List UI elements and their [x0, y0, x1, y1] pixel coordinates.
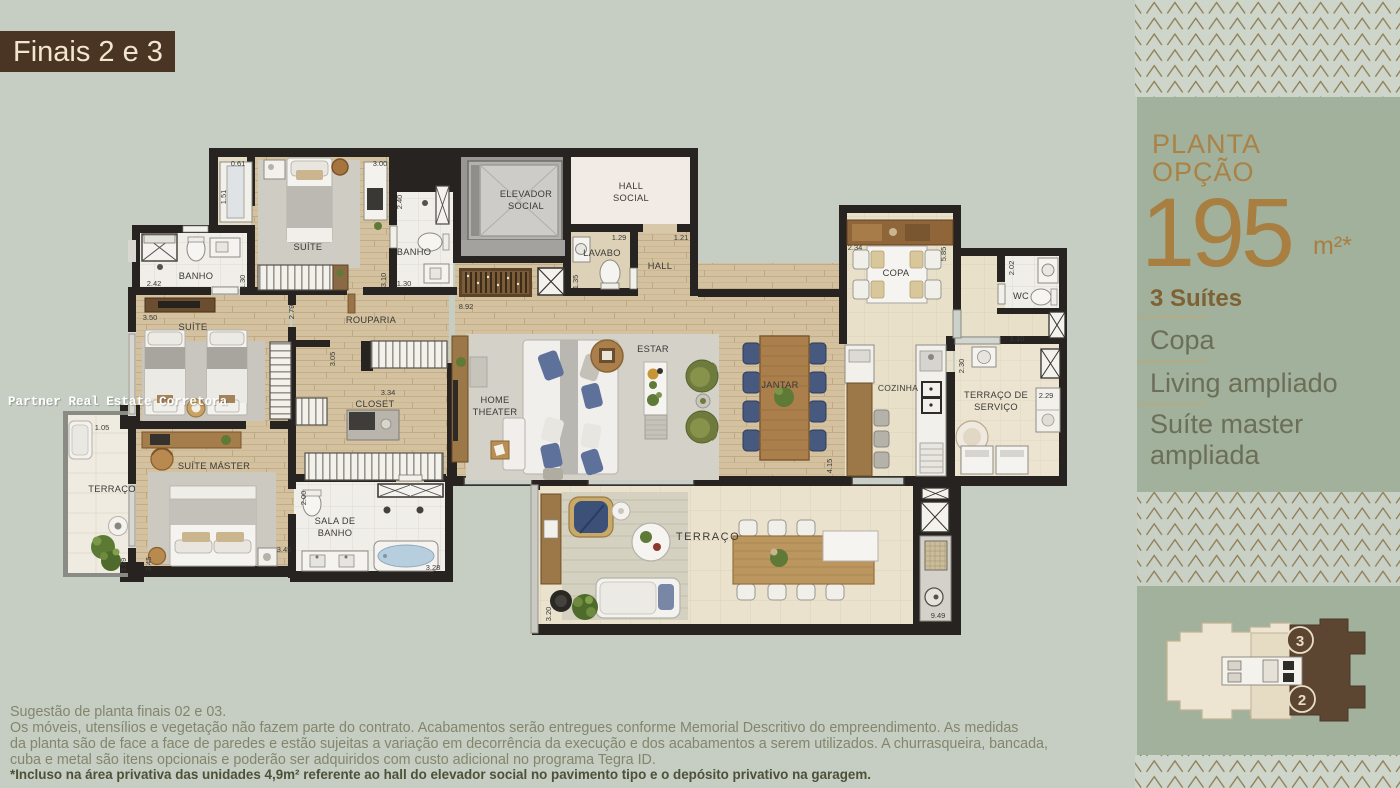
svg-text:TERRAÇO: TERRAÇO — [88, 484, 136, 494]
svg-text:SERVIÇO: SERVIÇO — [974, 402, 1018, 412]
svg-text:HOME: HOME — [480, 395, 509, 405]
svg-text:ELEVADOR: ELEVADOR — [500, 189, 552, 199]
svg-text:1.30: 1.30 — [238, 275, 247, 290]
svg-text:da planta são de face a face d: da planta são de face a face de paredes … — [10, 736, 1048, 752]
svg-text:BANHO: BANHO — [179, 271, 214, 281]
svg-text:Living ampliado: Living ampliado — [1150, 368, 1338, 398]
svg-text:4.15: 4.15 — [825, 459, 834, 474]
svg-text:SUÍTE: SUÍTE — [179, 322, 208, 332]
svg-text:3.45: 3.45 — [144, 557, 153, 572]
svg-text:1.10: 1.10 — [1010, 334, 1025, 343]
svg-text:PLANTA: PLANTA — [1152, 129, 1261, 159]
svg-text:BANHO: BANHO — [397, 247, 432, 257]
svg-text:2.02: 2.02 — [1007, 261, 1016, 276]
svg-text:Copa: Copa — [1150, 325, 1216, 355]
svg-text:COZINHA: COZINHA — [878, 383, 918, 393]
svg-text:SUÍTE: SUÍTE — [294, 242, 323, 252]
svg-text:5.85: 5.85 — [939, 247, 948, 262]
svg-text:2.29: 2.29 — [1039, 391, 1054, 400]
svg-text:HALL: HALL — [648, 261, 672, 271]
svg-text:SOCIAL: SOCIAL — [508, 201, 544, 211]
svg-text:ampliada: ampliada — [1150, 440, 1261, 470]
svg-text:cuba e metal são itens opciona: cuba e metal são itens opcionais e poder… — [10, 752, 656, 768]
svg-text:CLOSET: CLOSET — [356, 399, 395, 409]
svg-text:2.00: 2.00 — [299, 491, 308, 506]
svg-text:Os móveis, utensílios e vegeta: Os móveis, utensílios e vegetação não fa… — [10, 720, 1018, 736]
svg-text:1.21: 1.21 — [674, 233, 689, 242]
svg-text:3.28: 3.28 — [426, 563, 441, 572]
svg-text:2.30: 2.30 — [957, 359, 966, 374]
svg-text:3.00: 3.00 — [373, 159, 388, 168]
svg-text:3 Suítes: 3 Suítes — [1150, 285, 1242, 312]
svg-text:1.29: 1.29 — [612, 233, 627, 242]
svg-text:8.92: 8.92 — [459, 302, 474, 311]
svg-text:2.34: 2.34 — [848, 243, 863, 252]
svg-text:LAVABO: LAVABO — [583, 248, 621, 258]
svg-text:m²*: m²* — [1313, 232, 1352, 260]
svg-text:Partner Real Estate Corretora: Partner Real Estate Corretora — [8, 395, 228, 409]
svg-text:SOCIAL: SOCIAL — [613, 193, 649, 203]
svg-text:BANHO: BANHO — [318, 528, 353, 538]
svg-text:3.34: 3.34 — [381, 388, 396, 397]
svg-text:195: 195 — [1141, 178, 1291, 287]
svg-text:Finais 2 e 3: Finais 2 e 3 — [13, 36, 163, 68]
svg-text:WC: WC — [1013, 291, 1029, 301]
svg-text:HALL: HALL — [619, 181, 643, 191]
svg-text:9.49: 9.49 — [931, 611, 946, 620]
svg-text:THEATER: THEATER — [473, 407, 518, 417]
svg-text:*Incluso na área privativa das: *Incluso na área privativa das unidades … — [10, 767, 871, 782]
svg-text:TERRAÇO: TERRAÇO — [676, 531, 740, 543]
svg-text:2.40: 2.40 — [395, 195, 404, 210]
svg-text:JANTAR: JANTAR — [761, 380, 798, 390]
svg-text:2: 2 — [1298, 692, 1306, 709]
svg-text:3.50: 3.50 — [143, 313, 158, 322]
svg-text:2.79: 2.79 — [287, 305, 296, 320]
svg-text:1.51: 1.51 — [219, 190, 228, 205]
svg-text:3.05: 3.05 — [328, 352, 337, 367]
svg-text:3.20: 3.20 — [544, 607, 553, 622]
svg-text:3.10: 3.10 — [379, 273, 388, 288]
svg-text:Suíte master: Suíte master — [1150, 409, 1303, 439]
svg-text:TERRAÇO DE: TERRAÇO DE — [964, 390, 1028, 400]
svg-text:0.61: 0.61 — [231, 159, 246, 168]
svg-text:ROUPARIA: ROUPARIA — [346, 315, 397, 325]
svg-text:1.05: 1.05 — [95, 423, 110, 432]
svg-text:3: 3 — [1296, 633, 1304, 650]
svg-text:COPA: COPA — [883, 268, 910, 278]
svg-text:ESTAR: ESTAR — [637, 344, 669, 354]
svg-text:SALA DE: SALA DE — [315, 516, 356, 526]
svg-text:1.35: 1.35 — [571, 275, 580, 290]
svg-text:Sugestão de planta finais 02 e: Sugestão de planta finais 02 e 03. — [10, 704, 226, 720]
svg-text:1.30: 1.30 — [397, 279, 412, 288]
svg-text:3.69: 3.69 — [119, 558, 128, 573]
svg-text:3.45: 3.45 — [277, 545, 292, 554]
svg-text:2.42: 2.42 — [147, 279, 162, 288]
svg-text:SUÍTE MÁSTER: SUÍTE MÁSTER — [178, 461, 250, 471]
